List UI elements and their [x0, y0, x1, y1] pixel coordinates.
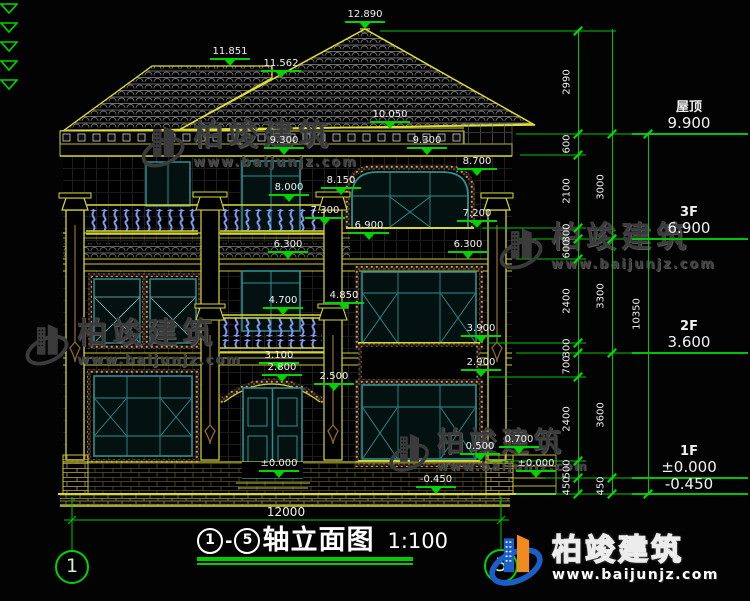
dimension-chain-line [578, 29, 579, 494]
level-label: 3F6.900 [630, 205, 748, 237]
dimension-value: 2400 [562, 406, 573, 431]
title-dash: - [225, 531, 232, 552]
elevation-annotation: 0.700 [499, 434, 539, 454]
axis-bubble: 1 [55, 550, 89, 584]
watermark-logo-icon [24, 318, 70, 370]
elevation-annotation: 11.851 [210, 46, 250, 66]
dimension-value: 3600 [596, 402, 607, 427]
elevation-annotation: ±0.000 [516, 458, 556, 478]
elevation-annotation: 2.500 [314, 371, 354, 391]
watermark-logo-icon [388, 428, 430, 476]
watermark-brand: 柏竣建筑 [77, 318, 242, 350]
watermark: 柏竣建筑 www.baijunjz.com [140, 120, 358, 172]
dimension-value: 2100 [562, 178, 573, 203]
drawing-title: 1 - 5 轴立面图 1:100 [197, 527, 448, 555]
watermark-url: www.baijunjz.com [77, 354, 242, 368]
level-label: -0.450 [630, 476, 748, 493]
elevation-annotation: -0.450 [416, 474, 456, 494]
elevation-annotation: 12.890 [345, 9, 385, 29]
elevation-annotation: 6.300 [448, 239, 488, 259]
balustrade-3f-left [88, 207, 196, 231]
elevation-annotation: 2.800 [262, 362, 302, 382]
dimension-value: 10350 [632, 298, 643, 330]
watermark-url: www.baijunjz.com [193, 156, 358, 170]
dimension-value: 2990 [562, 69, 573, 94]
elevation-annotation: 8.700 [457, 156, 497, 176]
title-name: 轴立面图 [262, 527, 374, 555]
elevation-annotation: 2.900 [461, 357, 501, 377]
overall-width-dim: 12000 [267, 505, 305, 519]
dimension-value: 450 [596, 476, 607, 495]
dimension-value: 700 [562, 355, 573, 374]
level-label: 屋顶9.900 [630, 100, 748, 132]
dimension-chain-line [648, 134, 649, 494]
level-line [632, 352, 748, 354]
axis-circle: 5 [234, 528, 260, 554]
elevation-annotation: 4.700 [263, 295, 303, 315]
title-underline [197, 557, 413, 561]
brand-logo-url: www.baijunjz.com [552, 568, 719, 583]
elevation-annotation: 9.300 [407, 135, 447, 155]
elevation-annotation: 9.300 [264, 135, 304, 155]
elevation-annotation: ±0.000 [259, 458, 299, 478]
watermark-logo-icon [498, 222, 544, 274]
dimension-value: 3000 [596, 174, 607, 199]
level-label: 1F±0.000 [630, 444, 748, 476]
watermark-logo-icon [140, 120, 186, 172]
elevation-annotation: 4.850 [324, 290, 364, 310]
elevation-annotation: 7.300 [305, 205, 345, 225]
elevation-annotation: 0.500 [460, 441, 500, 461]
elevation-annotation: 6.300 [268, 239, 308, 259]
title-underline [197, 563, 413, 565]
elevation-annotation: 8.000 [269, 182, 309, 202]
elevation-annotation: 11.562 [261, 58, 301, 78]
elevation-annotation: 8.150 [321, 175, 361, 195]
watermark: 柏竣建筑 www.baijunjz.com [24, 318, 242, 370]
level-line [632, 238, 748, 240]
level-label: 2F3.600 [630, 319, 748, 351]
title-scale: 1:100 [387, 529, 448, 553]
elevation-annotation: 7.200 [457, 208, 497, 228]
elevation-annotation: 10.050 [370, 109, 410, 129]
dimension-value: 2400 [562, 288, 573, 313]
brand-logo-text: 柏竣建筑 [552, 535, 719, 566]
axis-circle: 1 [197, 528, 223, 554]
dimension-value: 600 [562, 134, 573, 153]
brand-logo: 柏竣建筑 www.baijunjz.com [487, 529, 719, 589]
dimension-value: 600 [562, 239, 573, 258]
brand-logo-icon [487, 529, 545, 589]
window-2f-right [362, 272, 476, 343]
elevation-annotation: 3.900 [461, 323, 501, 343]
dimension-chain-line [612, 29, 613, 494]
elevation-annotation: 6.900 [349, 220, 389, 240]
dimension-value: 3300 [596, 283, 607, 308]
cad-elevation-screenshot: 柏竣建筑 www.baijunjz.com 柏竣建筑 www.baijunjz.… [0, 0, 750, 601]
dimension-value: 450 [562, 476, 573, 495]
